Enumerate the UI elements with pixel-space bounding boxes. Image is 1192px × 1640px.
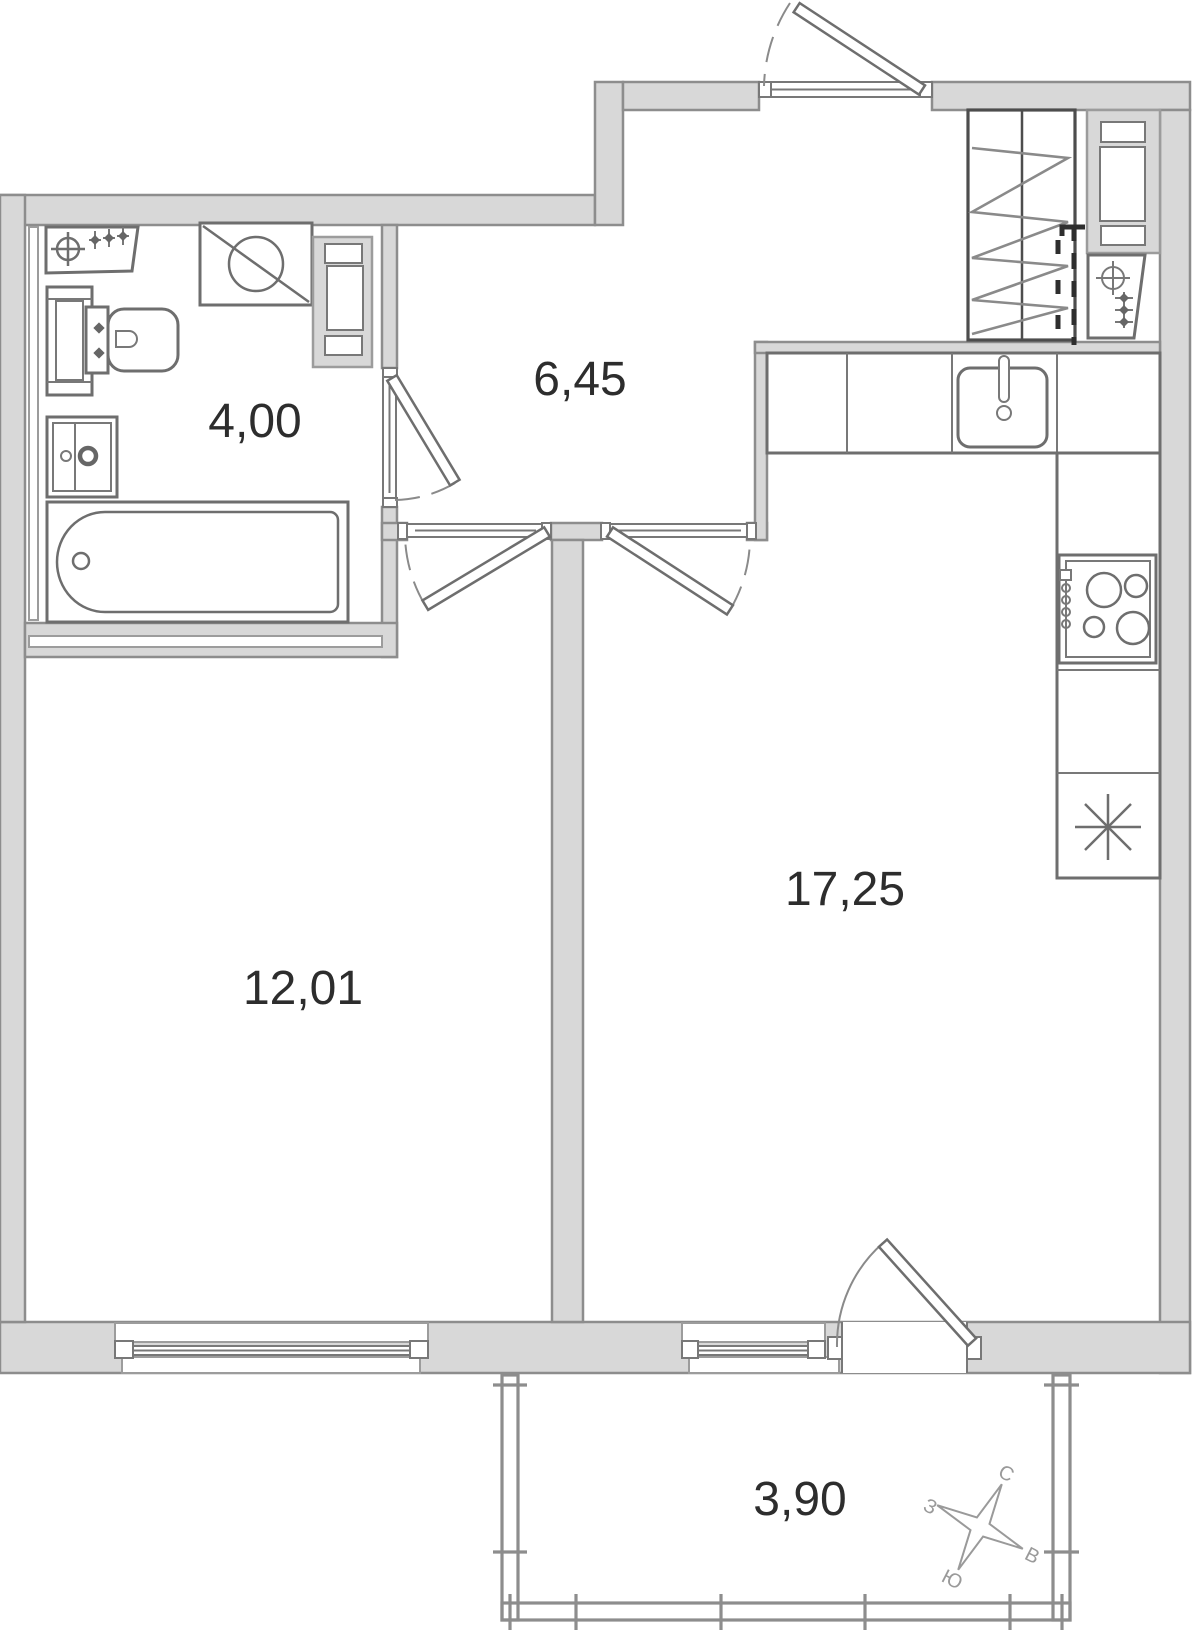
water-heater: [1087, 110, 1160, 253]
hallway-area-label: 6,45: [533, 353, 626, 406]
balcony-area-label: 3,90: [753, 1473, 846, 1526]
kitchen-sink: [958, 356, 1047, 447]
bathroom-door: [383, 368, 460, 507]
bathtub: [47, 502, 348, 622]
bathroom-area-label: 4,00: [208, 395, 301, 448]
faucet-marks: [1115, 292, 1133, 328]
bedroom-door-leaf: [422, 527, 549, 610]
washbasin: [46, 227, 138, 273]
vent-shaft: [313, 237, 372, 367]
kitchen-door: [601, 523, 756, 614]
compass-star: [937, 1484, 1023, 1570]
utility-sink: [1088, 255, 1145, 338]
bedroom-area-label: 12,01: [243, 962, 363, 1015]
compass-east-label: В: [1021, 1543, 1043, 1569]
kitchen-area-label: 17,25: [785, 863, 905, 916]
storage-cabinet: [47, 417, 117, 497]
stove: [1059, 555, 1156, 663]
bedroom-door: [398, 523, 551, 610]
compass-rose: С В Ю З: [920, 1461, 1043, 1594]
kitchen-door-leaf: [607, 527, 733, 614]
compass-south-label: Ю: [938, 1566, 966, 1595]
entrance-door-leaf: [794, 3, 925, 95]
compass-north-label: С: [995, 1461, 1018, 1487]
bedroom-window: [115, 1323, 428, 1373]
entrance-door: [759, 3, 932, 97]
floor-plan-canvas: 4,00 6,45 12,01 17,25 3,90 С В Ю З: [0, 0, 1192, 1640]
floor-plan-page: 4,00 6,45 12,01 17,25 3,90 С В Ю З: [0, 0, 1192, 1640]
washing-machine: [200, 223, 312, 305]
toilet: [86, 307, 178, 373]
bathroom-door-leaf: [387, 375, 459, 485]
wardrobe: [968, 110, 1075, 340]
kitchen-window: [682, 1323, 839, 1373]
compass-west-label: З: [920, 1494, 941, 1519]
